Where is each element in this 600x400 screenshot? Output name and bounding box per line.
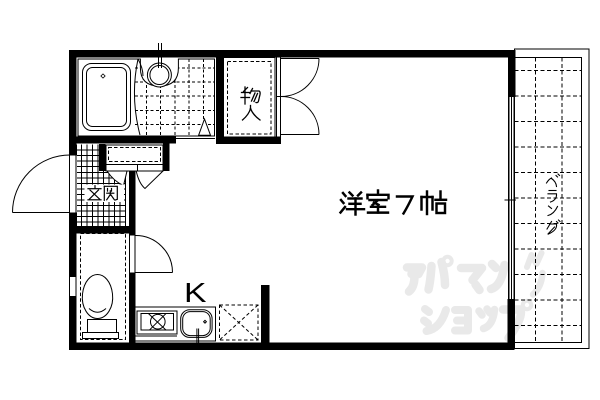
svg-text:K: K — [184, 277, 207, 308]
